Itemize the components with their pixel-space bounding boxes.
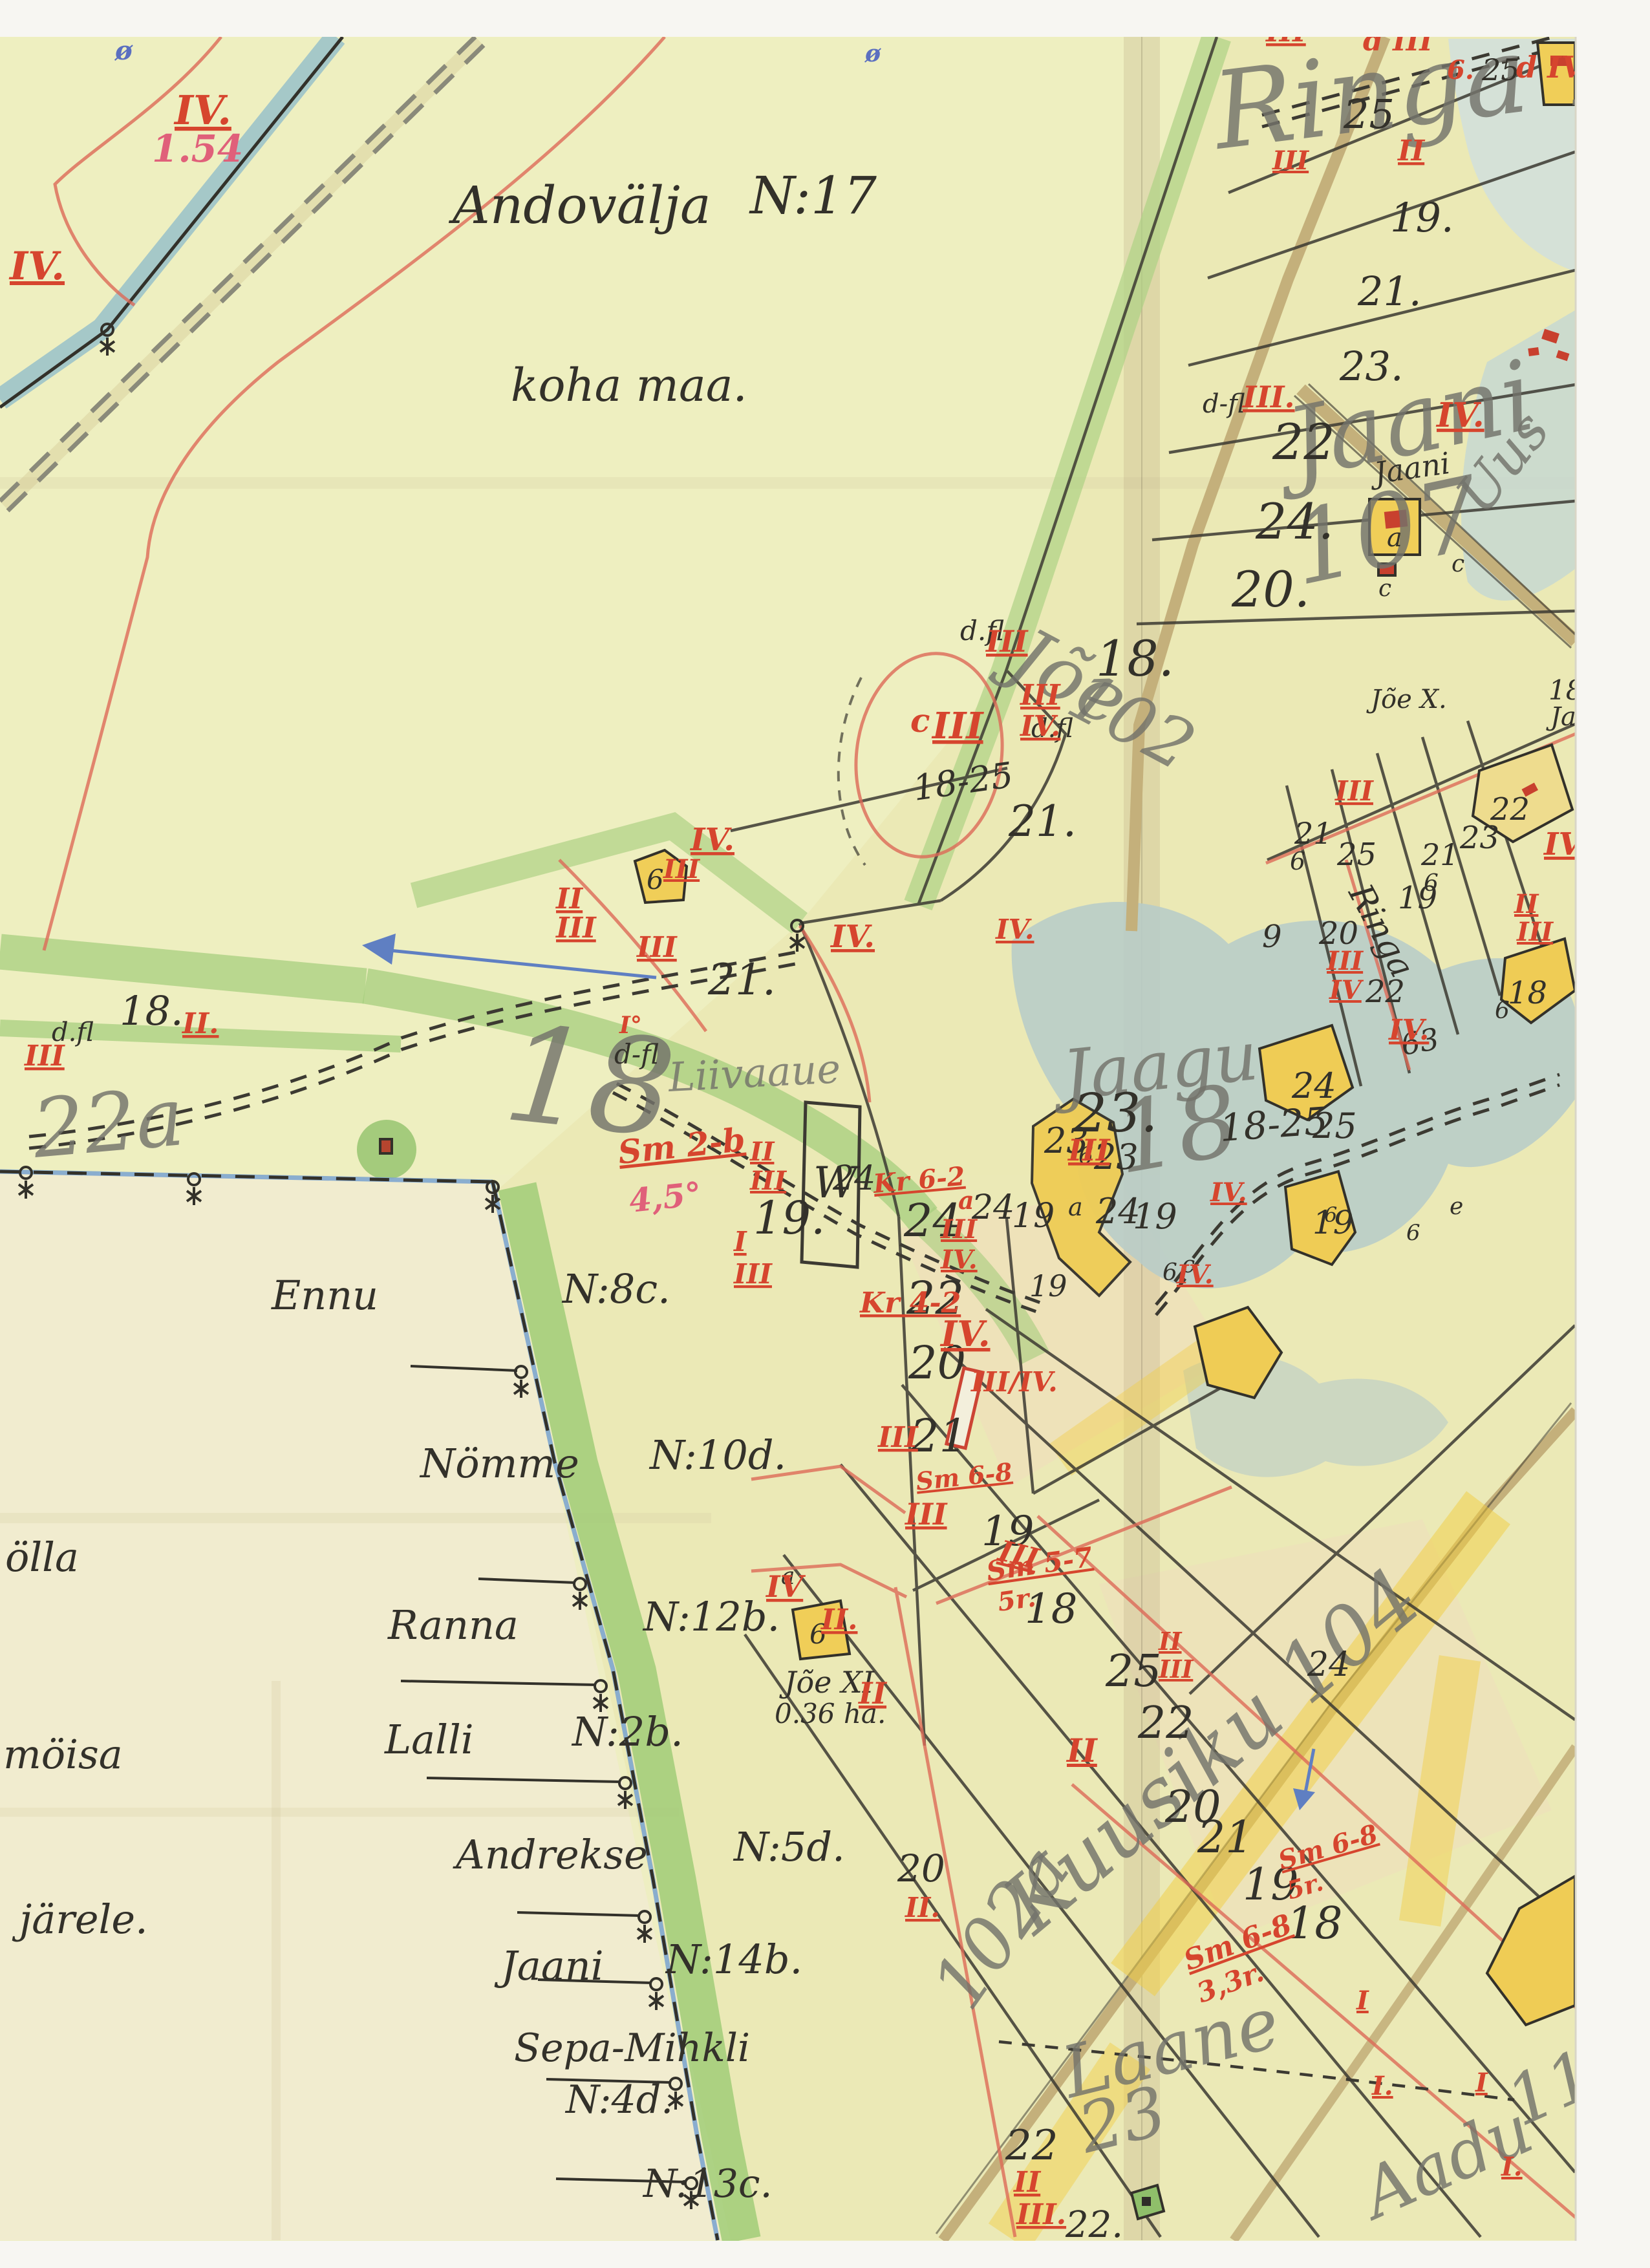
map-text-red: IV.	[1210, 1177, 1247, 1208]
map-text-ink: N:8c.	[561, 1265, 670, 1312]
map-text-ink: 20	[897, 1846, 945, 1890]
map-text-ink: 25	[1105, 1646, 1162, 1697]
map-text-ink: a	[1068, 1193, 1083, 1221]
map-text-red: III.	[1241, 380, 1295, 414]
map-text-red: II	[555, 883, 584, 915]
map-text-ink: 19	[1133, 1196, 1177, 1237]
map-text-red: IV.	[689, 822, 734, 858]
map-text-ink: 6	[647, 864, 664, 895]
map-text-ink: 24	[1291, 1065, 1336, 1106]
map-text-ink: N:2b.	[571, 1708, 683, 1755]
map-scan: AndoväljaN:17koha maa.EnnuN:8c.NömmeN:10…	[0, 0, 1650, 2268]
map-text-red: II.	[820, 1603, 857, 1636]
label-lalli: Lalli	[384, 1716, 474, 1763]
label-n17: N:17	[749, 166, 877, 226]
map-text-red: III	[985, 624, 1029, 659]
map-text-ink: d-fl	[1203, 389, 1245, 419]
map-text-red: IV.	[939, 1313, 991, 1354]
map-text-ink: 25	[1312, 1106, 1357, 1146]
map-text-red: III	[733, 1258, 773, 1290]
map-text-red: I	[733, 1226, 747, 1257]
map-text-red: III	[1326, 946, 1364, 976]
map-text-ink: 22	[1490, 791, 1530, 828]
map-text-red: IV.	[1387, 1014, 1429, 1047]
map-text-ink: 22	[1005, 2122, 1058, 2170]
map-text-ink: 23.	[1339, 343, 1404, 390]
map-text-ink: 18	[1287, 1898, 1343, 1949]
map-text-ink: 22.	[1065, 2204, 1123, 2246]
label-nomme: Nömme	[419, 1440, 579, 1487]
windmill-symbol: W	[813, 1158, 861, 1208]
map-text-red: II	[1158, 1627, 1183, 1656]
map-text-ink: 6	[1406, 1220, 1420, 1246]
map-text-ink: 20.	[1231, 561, 1310, 618]
map-text-ink: 21	[910, 1409, 968, 1462]
map-text-ink: Jõe X.	[1366, 685, 1447, 714]
map-text-red: III	[1516, 917, 1554, 947]
map-text-ink: 24.	[1255, 493, 1334, 550]
map-text-ink: 19.	[1390, 194, 1454, 241]
map-text-ink: N:5d.	[733, 1823, 845, 1870]
map-text-red: II	[1514, 889, 1539, 919]
map-text-ink: 21	[1197, 1812, 1254, 1863]
map-text-blue: ø	[864, 40, 881, 67]
label-n13c: N:13c.	[642, 2161, 773, 2207]
pencil-22a: 22a	[28, 1070, 187, 1177]
map-text-red: IV.	[940, 1245, 978, 1275]
map-text-red: II	[1012, 2166, 1042, 2199]
pencil-liivaaue: Liivaaue	[667, 1045, 842, 1101]
map-text-ink: 24	[971, 1188, 1014, 1227]
map-text-red: III	[663, 854, 700, 884]
map-text-red: 5r.	[996, 1582, 1038, 1618]
map-text-red: IV	[765, 1569, 806, 1604]
map-text-red: IV.	[1435, 396, 1484, 435]
map-text-ink: 25	[1481, 52, 1520, 87]
map-text-red: II	[857, 1676, 888, 1711]
map-text-red: III	[931, 705, 984, 747]
cadastral-map: AndoväljaN:17koha maa.EnnuN:8c.NömmeN:10…	[0, 0, 1650, 2268]
map-text-red: II.	[181, 1007, 219, 1040]
map-text-red: I°	[619, 1012, 642, 1039]
map-text-ink: d-fl	[614, 1038, 659, 1070]
map-text-red: III	[904, 1497, 948, 1532]
map-text-ink: N:14b.	[665, 1936, 802, 1983]
map-text-ink: 9	[1262, 919, 1282, 955]
map-text-ink: 18	[1508, 975, 1547, 1011]
map-text-ink: 25	[1343, 91, 1395, 138]
map-text-blue: ø	[114, 36, 133, 66]
map-text-red: IV.	[1176, 1259, 1214, 1290]
map-text-red: III	[1272, 145, 1309, 176]
map-text-ink: 25	[1336, 837, 1377, 873]
label-ranna: Ranna	[387, 1601, 519, 1649]
map-text-ink: 21.	[1008, 797, 1077, 846]
map-text-red: III	[749, 1166, 787, 1196]
label-sepa-mihkli: Sepa-Mihkli	[514, 2026, 750, 2071]
map-text-red: III.	[1015, 2198, 1066, 2231]
map-text-ink: 18.	[120, 987, 184, 1034]
map-text-red: III	[1158, 1654, 1194, 1684]
map-text-ink: 6	[1324, 1203, 1337, 1227]
map-text-red: I	[1356, 1985, 1369, 2016]
map-text-ink: 21.	[1357, 268, 1422, 315]
map-text-ink: c	[1452, 551, 1464, 577]
label-andrekse: Andrekse	[453, 1831, 648, 1878]
map-text-ink: 24	[1307, 1645, 1350, 1684]
map-text-ink: c	[1378, 575, 1391, 602]
map-text-red: III/IV.	[970, 1366, 1058, 1398]
map-text-ink: 21	[1294, 816, 1333, 851]
label-moisa-fragment: möisa	[3, 1731, 123, 1778]
label-olla-fragment: ölla	[5, 1534, 79, 1581]
map-text-red: IV.	[1019, 710, 1060, 743]
map-text-red: IV.	[8, 244, 65, 289]
map-text-ink: 22	[1272, 413, 1335, 471]
map-text-red: IV.	[830, 919, 875, 955]
map-text-ink: 6	[1495, 998, 1510, 1024]
map-text-red: III	[1019, 679, 1061, 712]
map-text-red: c	[910, 701, 930, 740]
map-text-red: III	[877, 1421, 919, 1454]
map-text-ink: 22	[1137, 1698, 1194, 1749]
map-text-red: I.	[1501, 2152, 1523, 2182]
map-text-red: III	[555, 912, 597, 945]
label-jaani-14b: Jaani	[494, 1942, 604, 1989]
map-text-ink: 22	[1365, 974, 1405, 1010]
map-text-ink: 19	[1029, 1268, 1067, 1303]
map-text-ink: N:12b.	[642, 1593, 780, 1640]
map-text-red: III	[940, 1214, 978, 1245]
map-text-red: 6.	[1447, 55, 1474, 85]
map-text-ink: 21	[1420, 837, 1459, 872]
label-ennu: Ennu	[271, 1272, 378, 1319]
map-text-ink: 18.	[1096, 630, 1174, 687]
map-text-red: III	[1067, 1133, 1111, 1168]
label-koha-maa: koha maa.	[511, 359, 747, 412]
map-text-ink: e	[1450, 1193, 1463, 1220]
map-text-ink: a	[1387, 523, 1402, 553]
map-text-red: I.	[1371, 2071, 1393, 2101]
map-text-ink: 6	[1424, 870, 1439, 897]
map-text-ink: 6	[1162, 1259, 1177, 1286]
map-text-red: II	[1066, 1731, 1098, 1770]
map-text-red: III	[1334, 775, 1374, 807]
map-text-ink: 19	[1012, 1197, 1055, 1236]
map-text-ink: 6	[1290, 847, 1305, 875]
map-text-red: IV.	[995, 914, 1034, 945]
map-text-pink: 1.54	[152, 127, 243, 171]
map-text-ink: N:4d.	[564, 2077, 673, 2123]
map-text-red: II.	[905, 1892, 940, 1923]
map-text-red: IV	[1329, 975, 1364, 1005]
map-text-ink: N:10d.	[648, 1431, 786, 1479]
map-text-red: II	[749, 1137, 775, 1167]
map-text-pink: 4,5°	[627, 1175, 703, 1220]
map-text-red: III	[636, 931, 678, 964]
map-text-red: II	[1397, 134, 1426, 167]
map-text-ink: 21.	[707, 955, 776, 1005]
label-jarele-fragment: järele.	[12, 1896, 148, 1943]
label-andovalja: Andovälja	[448, 175, 711, 235]
map-text-red: I	[1475, 2068, 1488, 2098]
map-text-red: III	[23, 1040, 65, 1073]
map-text-red: a	[958, 1186, 974, 1215]
